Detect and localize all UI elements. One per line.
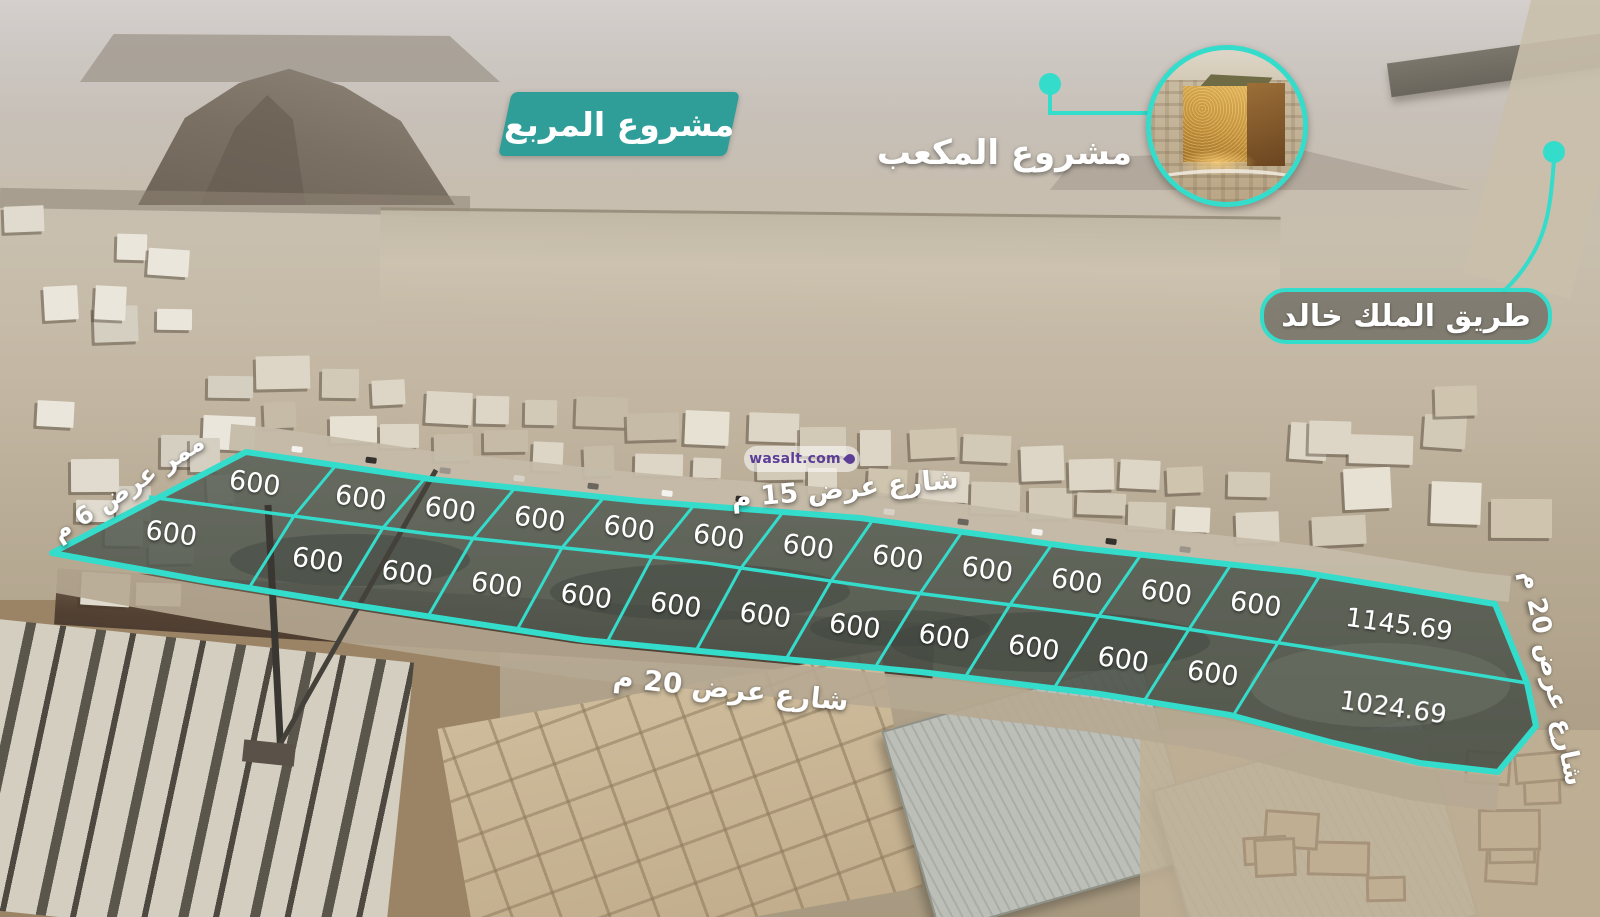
crane-body <box>242 739 296 766</box>
map-pin-icon <box>843 452 857 466</box>
king-khalid-road-label: طريق الملك خالد <box>1281 299 1530 334</box>
wasalt-watermark-text: wasalt.com <box>749 451 840 467</box>
king-khalid-road-badge: طريق الملك خالد <box>1260 288 1552 344</box>
murabba-project-badge: مشروع المربع <box>498 92 740 156</box>
mukaab-road-arc <box>1146 169 1308 207</box>
mukaab-callout-dot <box>1039 73 1061 95</box>
murabba-project-label: مشروع المربع <box>504 105 734 144</box>
wasalt-watermark: wasalt.com <box>744 446 860 472</box>
mukaab-photo-circle <box>1146 45 1308 207</box>
mukaab-connector-horizontal <box>1048 111 1148 115</box>
aerial-plot-map: 6006006006006006006006006006006006006006… <box>0 0 1600 917</box>
mukaab-project-label: مشروع المكعب <box>877 133 1132 173</box>
king-khalid-road-connector <box>1490 150 1570 300</box>
king-khalid-road-dot <box>1543 141 1565 163</box>
